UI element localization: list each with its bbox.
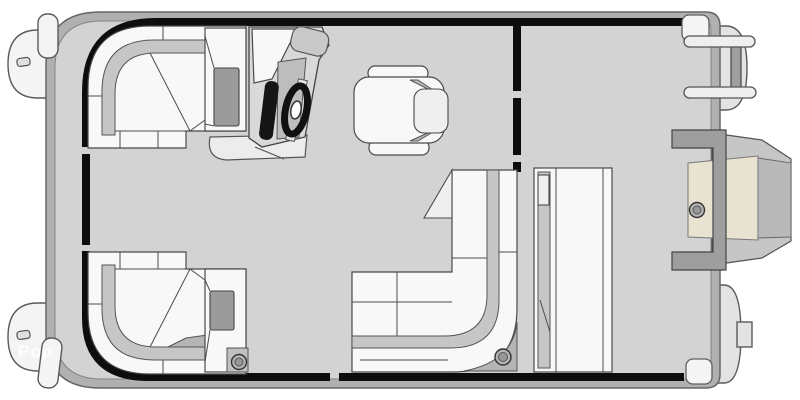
- bow-lounge-top: [88, 26, 246, 148]
- bow-fender-top: [38, 14, 58, 58]
- watermark: Pop: [18, 342, 53, 361]
- motor-vent-center: [693, 206, 701, 214]
- nose-handle-bottom: [17, 330, 31, 340]
- cup-holder-center: [499, 353, 508, 362]
- lounge-armrest-pad: [210, 291, 234, 330]
- bow-lounge-bottom: [88, 252, 248, 374]
- stern-bench: [534, 168, 612, 372]
- bench-latch: [538, 175, 549, 205]
- ladder-rung: [684, 36, 755, 47]
- motor-cowling-shade: [758, 158, 791, 238]
- captain-chair: [354, 66, 448, 155]
- chair-backrest: [414, 89, 448, 133]
- nose-handle-top: [17, 57, 31, 67]
- lounge-armrest-pad: [214, 68, 239, 126]
- corner-cap-bottom: [686, 359, 712, 384]
- ladder-rung: [684, 87, 756, 98]
- ladder-rail: [731, 40, 741, 94]
- cup-holder-center: [235, 358, 243, 366]
- stern-tube-bracket: [737, 322, 752, 347]
- floor-plan-svg: Pop: [0, 0, 800, 400]
- floor-plan-image: Pop: [0, 0, 800, 400]
